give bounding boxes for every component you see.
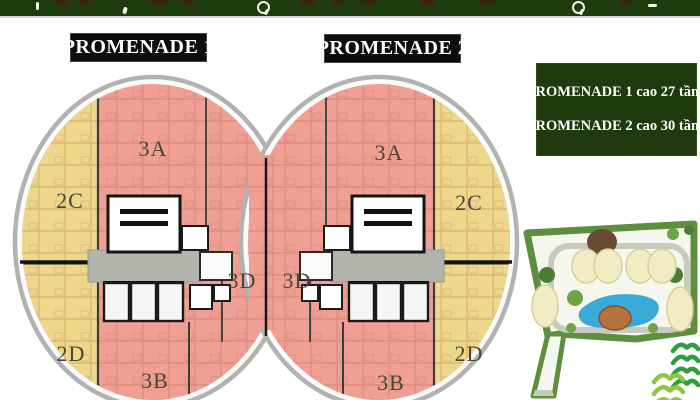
unit-label-p2-2d: 2D [455, 341, 484, 367]
unit-label-p2-3b: 3B [377, 370, 405, 396]
unit-label-p1-2d: 2D [57, 341, 86, 367]
unit-label-p1-3d: 3D [228, 268, 257, 294]
unit-label-p1-3b: 3B [141, 368, 169, 394]
brand-chevrons-icon [640, 340, 700, 400]
info-panel: PROMENADE 1 cao 27 tầng PROMENADE 2 cao … [536, 63, 697, 156]
site-building-4 [667, 287, 693, 331]
info-line-promenade1: PROMENADE 1 cao 27 tầng [527, 84, 700, 101]
site-building-3 [532, 285, 558, 327]
info-line-promenade2: PROMENADE 2 cao 30 tầng [527, 118, 700, 135]
floorplan-brochure: PROMENADE 1 PROMENADE 2 [0, 0, 700, 400]
unit-label-p1-3a: 3A [139, 136, 168, 162]
unit-label-p2-2c: 2C [455, 190, 483, 216]
unit-label-p2-3a: 3A [375, 140, 404, 166]
unit-label-p2-3d: 3D [283, 268, 312, 294]
site-lawn [599, 306, 631, 330]
unit-label-p1-2c: 2C [56, 188, 84, 214]
